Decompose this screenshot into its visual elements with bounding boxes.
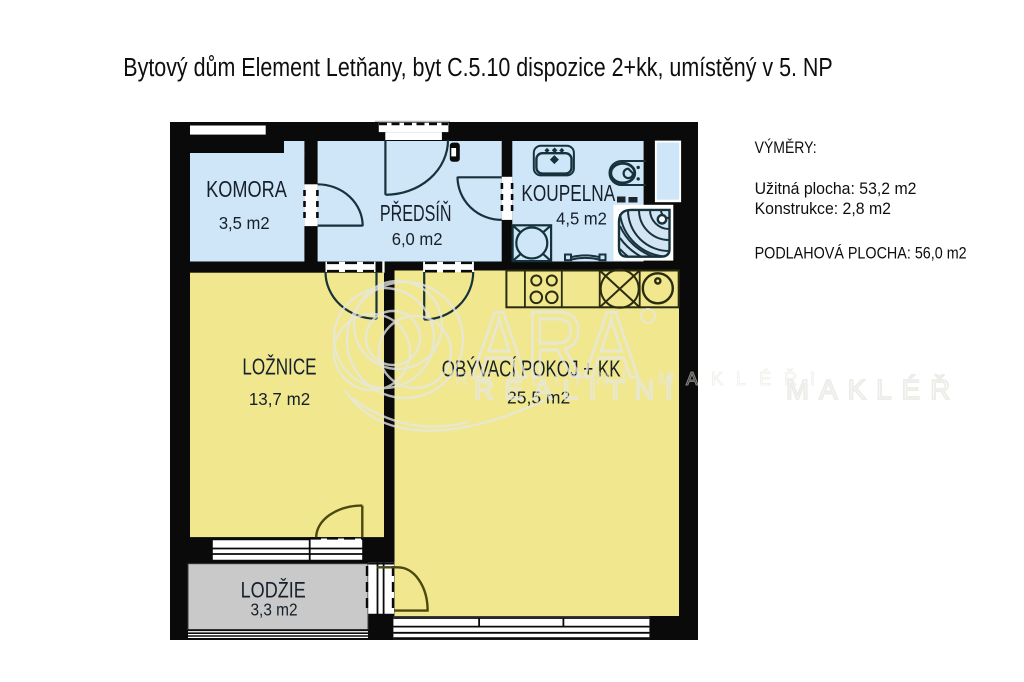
svg-text:3,3 m2: 3,3 m2: [250, 601, 297, 620]
svg-text:REALITNÍ MAKLÉŘI: REALITNÍ MAKLÉŘI: [455, 369, 828, 389]
svg-text:Užitná plocha: 53,2 m2: Užitná plocha: 53,2 m2: [755, 180, 917, 198]
svg-text:VÝMĚRY:: VÝMĚRY:: [755, 139, 817, 157]
svg-text:4,5 m2: 4,5 m2: [556, 209, 607, 228]
svg-text:LOŽNICE: LOŽNICE: [242, 354, 316, 380]
svg-text:Bytový dům Element Letňany, by: Bytový dům Element Letňany, byt C.5.10 d…: [123, 53, 832, 82]
svg-text:6,0 m2: 6,0 m2: [392, 230, 443, 249]
svg-text:KOMORA: KOMORA: [206, 177, 287, 203]
svg-text:3,5 m2: 3,5 m2: [219, 214, 270, 233]
svg-text:Konstrukce: 2,8 m2: Konstrukce: 2,8 m2: [755, 200, 891, 218]
svg-text:13,7 m2: 13,7 m2: [249, 389, 310, 409]
svg-text:PODLAHOVÁ PLOCHA: 56,0 m2: PODLAHOVÁ PLOCHA: 56,0 m2: [755, 244, 967, 262]
svg-text:KOUPELNA: KOUPELNA: [521, 182, 615, 207]
svg-text:PŘEDSÍŇ: PŘEDSÍŇ: [380, 200, 452, 227]
svg-text:LODŽIE: LODŽIE: [241, 578, 306, 603]
